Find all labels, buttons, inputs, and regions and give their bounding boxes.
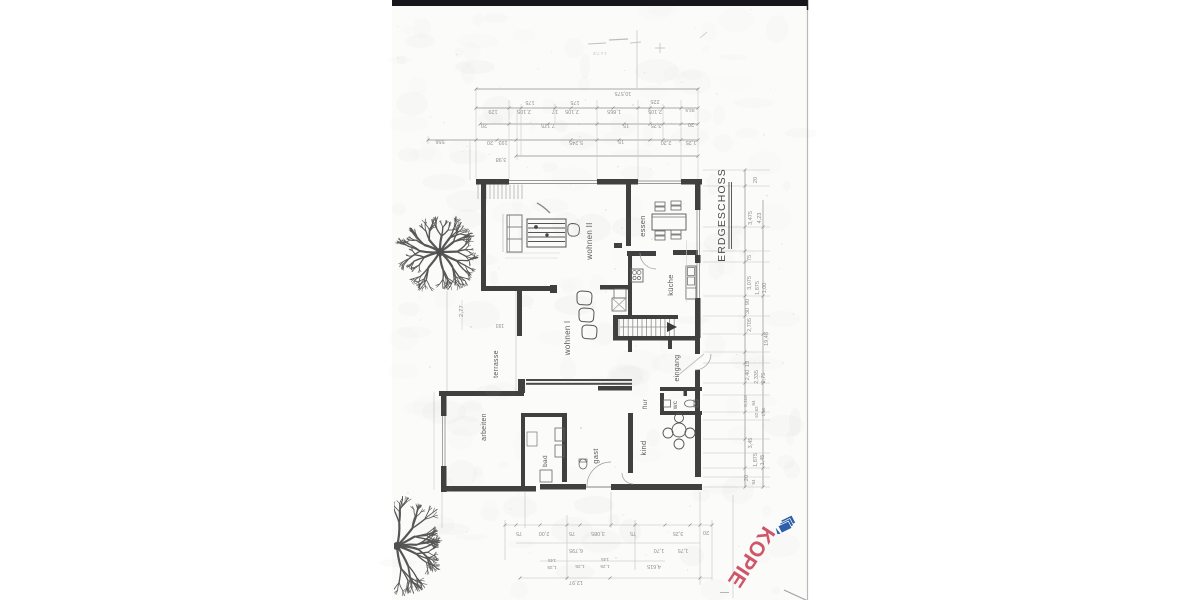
svg-text:1,25: 1,25: [547, 564, 557, 570]
svg-text:193: 193: [496, 322, 505, 328]
svg-text:1 x 7,9: 1 x 7,9: [593, 51, 607, 56]
svg-text:1,70: 1,70: [654, 547, 665, 553]
svg-text:terrasse: terrasse: [493, 350, 500, 378]
svg-text:2,20: 2,20: [661, 139, 672, 145]
svg-text:2,00: 2,00: [539, 530, 550, 536]
svg-text:20: 20: [487, 139, 493, 145]
svg-text:flur: flur: [642, 398, 649, 409]
svg-text:4,615: 4,615: [647, 563, 661, 569]
svg-text:75: 75: [516, 530, 522, 536]
svg-text:175: 175: [525, 99, 534, 105]
svg-text:1,00: 1,00: [762, 283, 768, 294]
svg-text:küche: küche: [666, 274, 675, 296]
svg-text:3,075: 3,075: [747, 276, 753, 290]
svg-text:3,475: 3,475: [748, 211, 754, 225]
svg-text:30: 30: [745, 308, 751, 314]
svg-text:20: 20: [703, 529, 709, 535]
svg-text:20: 20: [688, 121, 694, 127]
svg-text:2,705: 2,705: [747, 318, 753, 332]
svg-text:3,25: 3,25: [673, 530, 684, 536]
svg-text:3,98: 3,98: [496, 156, 507, 162]
svg-text:1,865: 1,865: [607, 108, 621, 114]
svg-text:10,575: 10,575: [615, 90, 632, 96]
svg-text:1,45: 1,45: [760, 455, 766, 466]
svg-text:2,75: 2,75: [761, 373, 767, 384]
svg-text:62 62: 62 62: [754, 406, 759, 418]
svg-text:7,175: 7,175: [541, 122, 555, 128]
svg-text:1,25: 1,25: [600, 563, 610, 569]
svg-text:1,875: 1,875: [755, 281, 761, 295]
svg-text:1,00: 1,00: [761, 407, 766, 416]
svg-text:90: 90: [745, 299, 751, 305]
svg-text:wc: wc: [672, 400, 679, 410]
svg-text:193: 193: [498, 139, 507, 145]
svg-text:145: 145: [601, 556, 609, 562]
svg-text:bad: bad: [542, 455, 549, 467]
svg-text:gast: gast: [591, 448, 600, 464]
svg-text:83,5: 83,5: [685, 107, 695, 113]
svg-text:19,48: 19,48: [764, 332, 770, 346]
svg-text:20: 20: [753, 177, 759, 183]
svg-text:3,25: 3,25: [651, 122, 662, 128]
svg-text:556: 556: [435, 138, 444, 144]
svg-text:6,795: 6,795: [569, 547, 583, 553]
svg-text:2,40: 2,40: [745, 370, 751, 381]
svg-text:145: 145: [548, 557, 556, 563]
svg-text:2,105: 2,105: [648, 108, 662, 114]
svg-text:1,875: 1,875: [753, 453, 759, 467]
